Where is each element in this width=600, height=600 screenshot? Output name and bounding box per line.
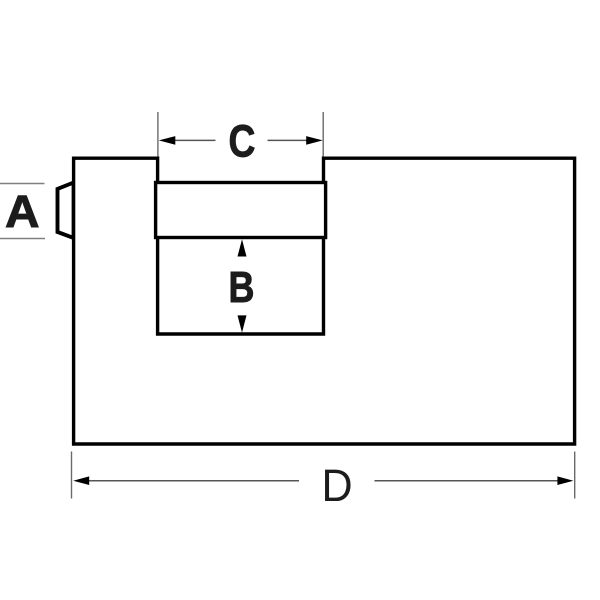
svg-text:A: A bbox=[5, 186, 40, 236]
svg-text:B: B bbox=[229, 264, 255, 312]
svg-text:D: D bbox=[321, 461, 352, 511]
svg-text:C: C bbox=[228, 116, 255, 166]
